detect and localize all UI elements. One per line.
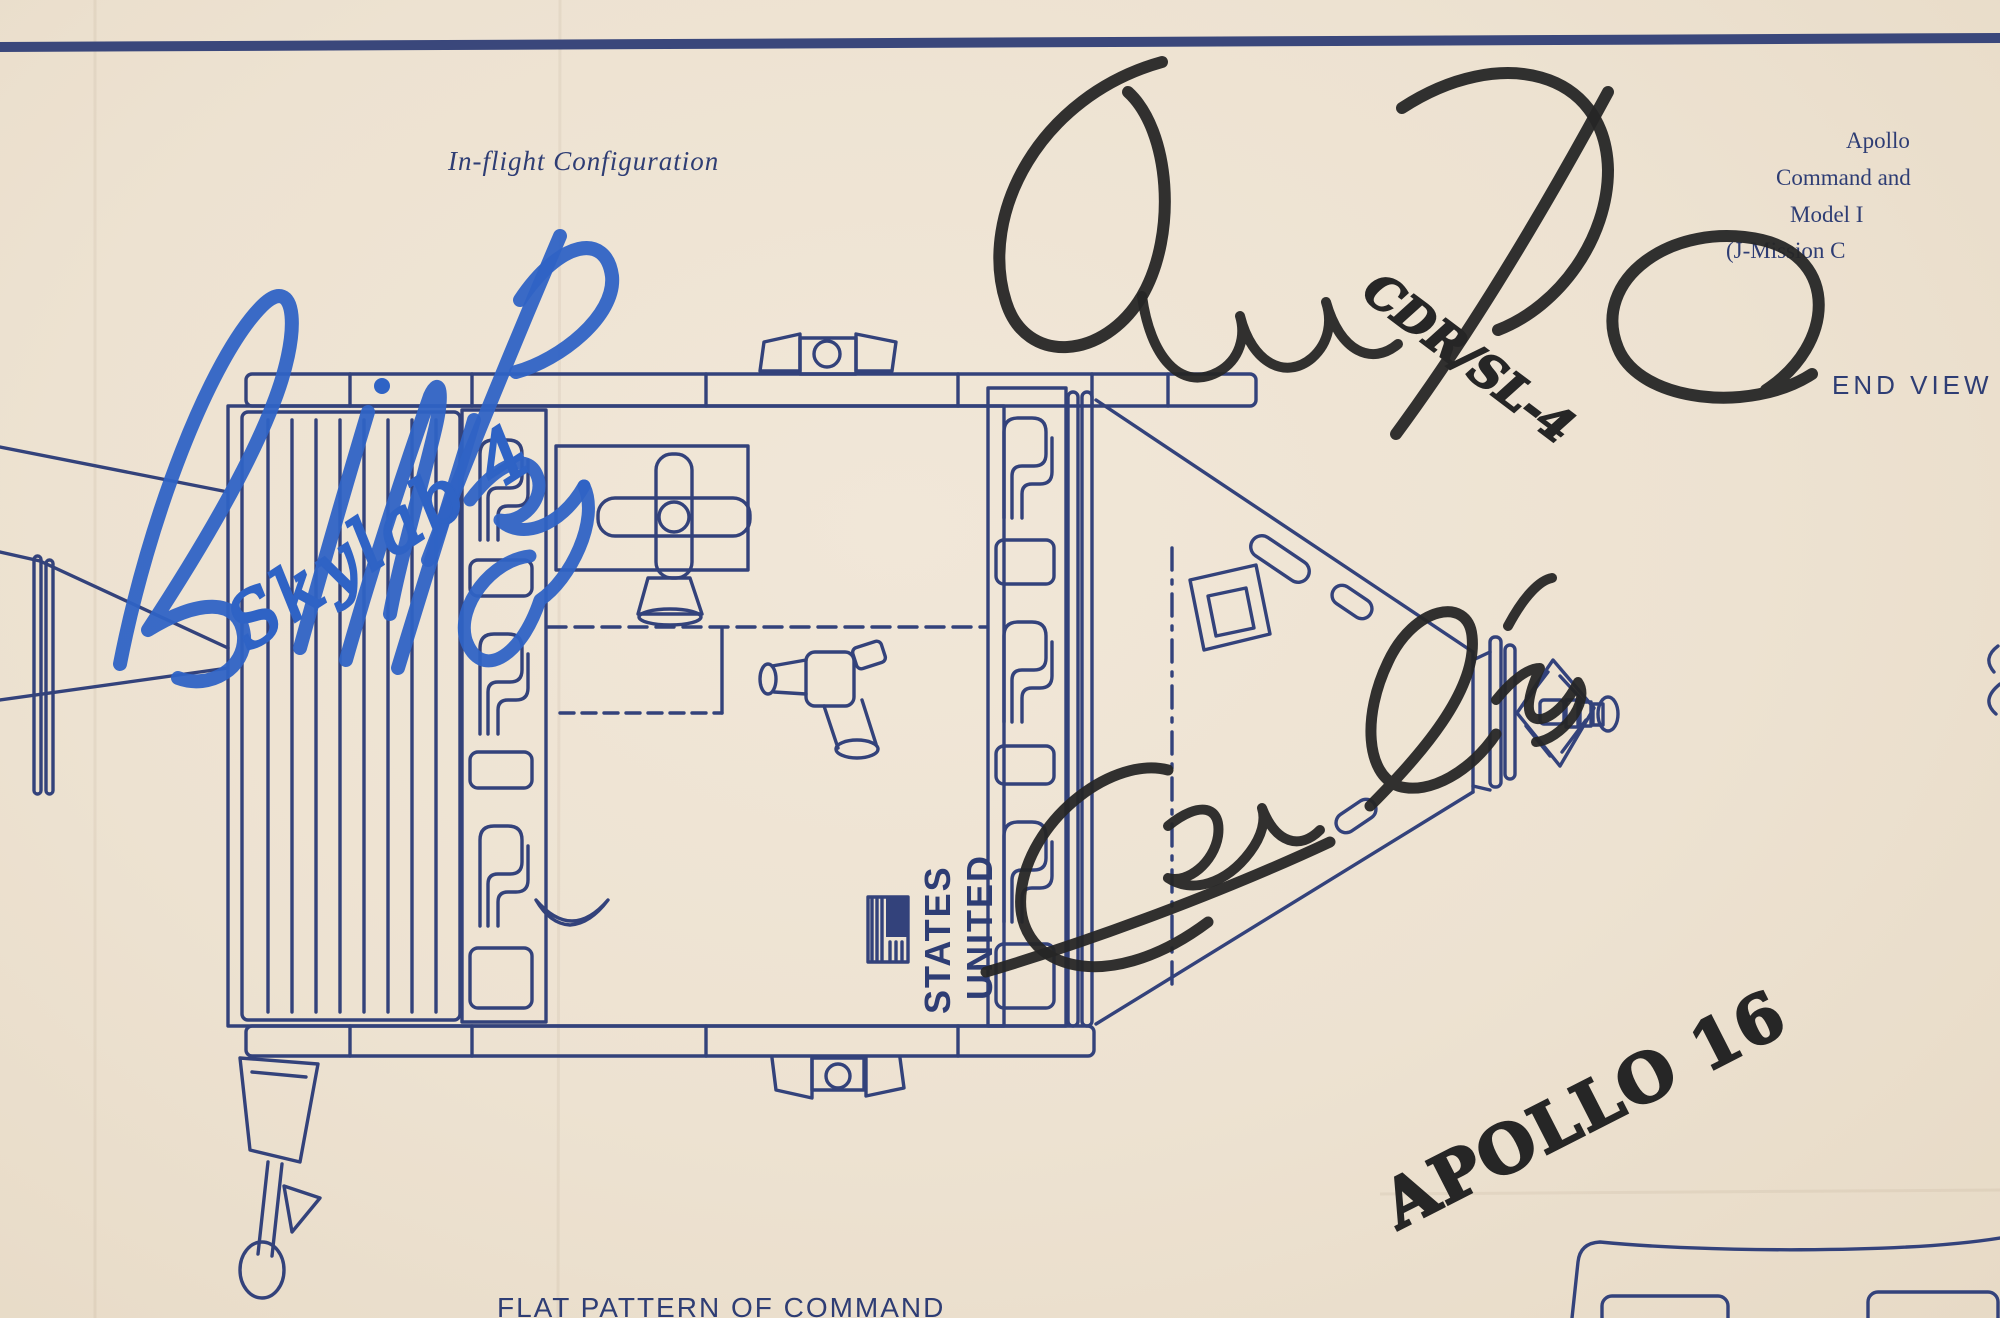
scimitar-antenna-bottom-icon (772, 1058, 904, 1098)
diagram-svg: UNITED STATES In-flight Configuration Ap… (0, 0, 2000, 1318)
vent-slot-upper (1328, 581, 1376, 622)
corner-line-1: Apollo (1846, 128, 1910, 153)
corner-line-2: Command and (1776, 165, 1911, 190)
crew-hatch-window (1190, 565, 1270, 650)
top-rule (0, 33, 2000, 52)
bottom-panel-band (246, 1026, 1094, 1056)
annotation-charlie-duke: APOLLO 16 (1369, 974, 1799, 1244)
command-module-cone (1068, 392, 1473, 1026)
aft-boom (240, 1058, 320, 1298)
signature-jerry-carr: Jerry Carr CDR/SL-4 (999, 62, 1818, 454)
corner-line-3: Model I (1790, 202, 1863, 227)
top-panel-band (246, 374, 1256, 406)
end-view-label: END VIEW (1832, 370, 1993, 400)
scimitar-antenna-top-icon (760, 334, 896, 374)
signature-bill-pogue: Bill Pogue Skylab 4 (120, 236, 612, 681)
rcs-pod-icon (760, 640, 887, 758)
partial-marks-right-edge (1989, 646, 2000, 714)
service-module (228, 374, 1256, 1056)
scanned-apollo-diagram: UNITED STATES In-flight Configuration Ap… (0, 0, 2000, 1318)
sps-nozzle-lines (0, 447, 228, 794)
signature-charlie-duke: Charlie Duke APOLLO 16 (986, 578, 1799, 1245)
partial-drawing-bottom-right (1572, 1238, 2000, 1318)
bottom-caption: FLAT PATTERN OF COMMAND (497, 1292, 945, 1318)
marking-united: UNITED (959, 854, 1000, 1000)
configuration-title: In-flight Configuration (447, 146, 719, 176)
marking-states: STATES (917, 865, 958, 1014)
us-flag-icon (868, 897, 908, 962)
